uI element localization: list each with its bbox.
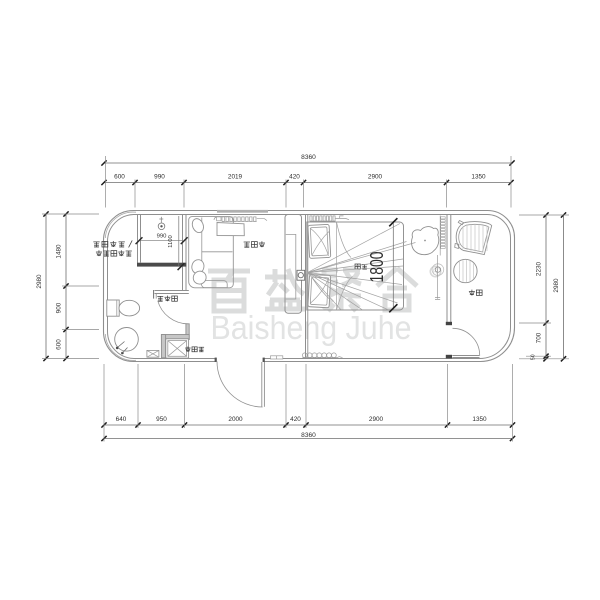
svg-text:2230: 2230	[536, 261, 543, 276]
svg-text:900: 900	[56, 302, 63, 313]
svg-text:Baisheng Juhe: Baisheng Juhe	[211, 310, 412, 347]
svg-text:950: 950	[156, 416, 167, 423]
svg-text:640: 640	[116, 416, 127, 423]
svg-text:990: 990	[154, 174, 165, 181]
svg-text:8360: 8360	[301, 432, 316, 439]
svg-text:2980: 2980	[36, 274, 43, 289]
svg-text:1350: 1350	[471, 174, 486, 181]
svg-text:2980: 2980	[553, 278, 560, 293]
svg-text:700: 700	[536, 332, 543, 343]
svg-text:420: 420	[289, 174, 300, 181]
svg-text:600: 600	[56, 339, 63, 350]
svg-text:1480: 1480	[56, 244, 63, 259]
svg-text:1100: 1100	[168, 234, 174, 247]
svg-text:2900: 2900	[368, 174, 383, 181]
svg-text:8360: 8360	[301, 154, 316, 161]
svg-text:1800: 1800	[367, 252, 387, 283]
svg-text:2000: 2000	[228, 416, 243, 423]
svg-text:2019: 2019	[228, 174, 243, 181]
svg-text:990: 990	[157, 233, 168, 239]
svg-text:2900: 2900	[369, 416, 384, 423]
svg-text:600: 600	[114, 174, 125, 181]
svg-text:420: 420	[290, 416, 301, 423]
svg-text:50: 50	[531, 354, 537, 360]
svg-text:1350: 1350	[472, 416, 487, 423]
